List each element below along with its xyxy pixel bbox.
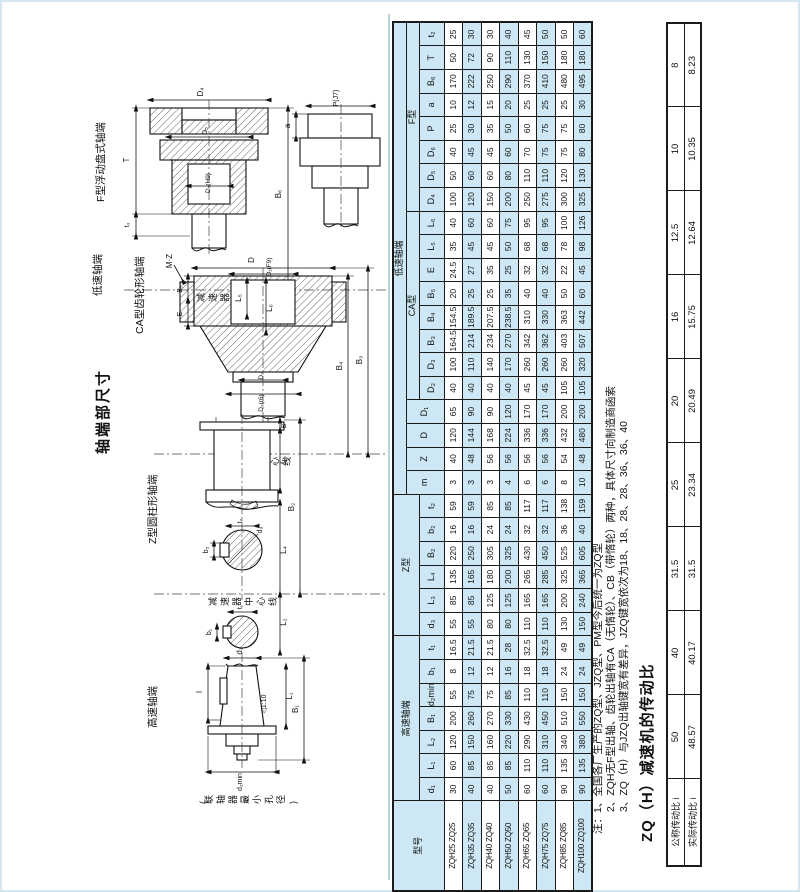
dim-label-b5: B₅	[177, 285, 184, 293]
table-cell: 180	[481, 565, 500, 589]
table-cell: 325	[574, 187, 593, 211]
table-cell: 35	[500, 282, 519, 306]
column-header: a	[419, 93, 444, 117]
table-cell: 238.5	[500, 305, 519, 329]
table-cell: 18	[537, 659, 556, 683]
table-cell: 40	[444, 140, 463, 164]
table-cell: 35	[481, 117, 500, 141]
table-cell: 165	[518, 589, 537, 613]
drawing-hs-type: 高速轴端 b₁ t₁ L₂ d₁ l ◁1:10	[146, 594, 310, 804]
drawing-label-z-type: Z型圆柱形轴端	[146, 474, 159, 544]
column-header: B₄	[419, 305, 444, 329]
table-cell: 40	[500, 22, 519, 46]
table-cell: 25	[481, 282, 500, 306]
table-cell: 55	[444, 683, 463, 707]
column-header: D	[406, 423, 444, 447]
dim-label-t1: t₁	[237, 604, 244, 609]
table-cell: 160	[481, 730, 500, 754]
table-cell: 180	[574, 46, 593, 70]
table-cell: 85	[463, 754, 482, 778]
table-cell: 180	[555, 46, 574, 70]
dim-label-d2min: d₂min	[237, 773, 244, 791]
table-cell: 70	[518, 140, 537, 164]
column-header: d₂min	[419, 683, 444, 707]
table-cell: 4	[500, 471, 519, 495]
table-cell: 40	[463, 777, 482, 801]
table-cell: 40	[463, 376, 482, 400]
table-cell: 95	[518, 211, 537, 235]
dim-label-b3: B₃	[355, 356, 364, 365]
table-cell: 380	[574, 730, 593, 754]
model-cell: ZQH35 ZQ35	[463, 801, 482, 891]
table-cell: 45	[518, 376, 537, 400]
table-cell: 110	[537, 683, 556, 707]
table-cell: 110	[537, 612, 556, 636]
table-cell: 159	[574, 494, 593, 518]
dim-label-b2k: b₂	[203, 546, 210, 553]
ratio-cell: 40.17	[684, 611, 701, 695]
dim-label-b4: B₄	[335, 362, 344, 371]
table-cell: 10	[574, 471, 593, 495]
table-cell: 50	[555, 22, 574, 46]
table-cell: 480	[555, 70, 574, 94]
table-cell: 120	[555, 164, 574, 188]
column-header: B₂	[419, 541, 444, 565]
ratio-cell: 31.5	[684, 527, 701, 611]
table-cell: 48	[574, 447, 593, 471]
ratio-cell: 48.57	[684, 695, 701, 779]
table-cell: 207.5	[481, 305, 500, 329]
table-cell: 130	[574, 164, 593, 188]
table-cell: 126	[574, 211, 593, 235]
table-cell: 85	[444, 589, 463, 613]
ratio-row-header: 实际传动比 i	[684, 779, 701, 866]
table-cell: 80	[500, 612, 519, 636]
note-line-2: 2、ZQH无F型出轴、齿轮出轴有CA（无惰轮）、CB（带惰轮）两种，具体尺寸向制…	[605, 520, 618, 834]
table-cell: 250	[481, 70, 500, 94]
ratio-row: 公称传动比 i504031.525201612.5108	[667, 23, 684, 866]
table-cell: 27	[463, 258, 482, 282]
column-header: P	[419, 117, 444, 141]
table-cell: 120	[444, 730, 463, 754]
table-cell: 120	[463, 187, 482, 211]
table-cell: 3	[463, 471, 482, 495]
table-cell: 250	[463, 541, 482, 565]
table-cell: 40	[518, 282, 537, 306]
table-cell: 40	[481, 376, 500, 400]
table-cell: 40	[444, 211, 463, 235]
table-cell: 135	[444, 565, 463, 589]
table-cell: 55	[463, 612, 482, 636]
ratio-cell: 25	[667, 443, 684, 527]
group-label-low-speed: 低速轴端	[91, 254, 104, 296]
table-cell: 16	[500, 659, 519, 683]
shaft-dimensions-table: 型号高速轴端Z型低速轴端mZDD₁CA型F型d₁L₁L₂B₁d₂minb₁t₁d…	[392, 24, 591, 892]
table-cell: 275	[537, 187, 556, 211]
table-cell: 362	[537, 329, 556, 353]
table-cell: 98	[574, 235, 593, 259]
table-cell: 50	[555, 282, 574, 306]
table-cell: 59	[444, 494, 463, 518]
table-cell: 403	[555, 329, 574, 353]
dim-label-d3ca: D₃(r6)	[258, 394, 265, 411]
table-cell: 35	[444, 235, 463, 259]
table-cell: 110	[500, 46, 519, 70]
table-cell: 40	[444, 447, 463, 471]
table-cell: 32.5	[537, 636, 556, 660]
dim-label-d1: D₁(F9)	[266, 258, 273, 277]
table-cell: 32	[518, 258, 537, 282]
drawing-label-f-type: F型浮动盘式轴端	[94, 122, 107, 202]
table-cell: 342	[518, 329, 537, 353]
page-title: 轴端部尺寸	[92, 370, 114, 454]
table-cell: 150	[555, 683, 574, 707]
column-header: B₃	[419, 329, 444, 353]
table-cell: 21.5	[481, 636, 500, 660]
table-cell: 200	[444, 707, 463, 731]
dim-label-d: D	[247, 257, 256, 263]
table-cell: 330	[500, 707, 519, 731]
table-cell: 100	[444, 187, 463, 211]
ratio-cell: 31.5	[667, 527, 684, 611]
dim-label-p: P(J7)	[333, 90, 340, 107]
table-cell: 25	[463, 282, 482, 306]
table-cell: 290	[518, 730, 537, 754]
dim-label-a: a	[283, 123, 292, 128]
table-cell: 410	[537, 70, 556, 94]
table-cell: 200	[555, 589, 574, 613]
table-cell: 430	[518, 541, 537, 565]
dim-label-b6: B₆	[274, 190, 283, 199]
table-cell: 550	[574, 707, 593, 731]
table-cell: 68	[518, 235, 537, 259]
table-cell: 85	[481, 754, 500, 778]
table-cell: 50	[500, 777, 519, 801]
table-cell: 60	[444, 754, 463, 778]
table-cell: 110	[537, 164, 556, 188]
dim-label-l2: L₂	[279, 618, 288, 626]
note-line-1: 注：1、全国各厂生产的ZQ型、JZQ型、PM型今后统一为ZQ型	[592, 520, 605, 834]
table-cell: 168	[481, 423, 500, 447]
table-cell: 85	[463, 589, 482, 613]
table-cell: 240	[574, 589, 593, 613]
ratio-table-title: ZQ（H）减速机的传动比	[636, 684, 662, 842]
table-cell: 325	[500, 541, 519, 565]
table-cell: 340	[555, 730, 574, 754]
table-cell: 90	[574, 777, 593, 801]
ratio-cell: 15.75	[684, 275, 701, 359]
table-cell: 110	[518, 683, 537, 707]
table-cell: 8	[555, 471, 574, 495]
table-cell: 260	[518, 353, 537, 377]
table-cell: 120	[500, 400, 519, 424]
table-cell: 495	[574, 70, 593, 94]
dim-label-l: l	[195, 691, 204, 693]
column-header: D₅	[419, 164, 444, 188]
table-row: ZQH65 ZQ65601102904301101832.51101652654…	[518, 22, 537, 891]
column-header: F型	[406, 22, 419, 211]
table-cell: 35	[481, 258, 500, 282]
ratio-cell: 23.34	[684, 443, 701, 527]
table-cell: 110	[518, 754, 537, 778]
table-cell: 285	[537, 565, 556, 589]
table-cell: 50	[444, 46, 463, 70]
table-cell: 265	[518, 565, 537, 589]
dim-label-d6: D₆(H9)	[205, 173, 212, 193]
column-header: D₆	[419, 140, 444, 164]
table-cell: 95	[537, 211, 556, 235]
table-cell: 3	[481, 471, 500, 495]
model-cell: ZQH75 ZQ75	[537, 801, 556, 891]
table-cell: 50	[500, 117, 519, 141]
table-cell: 450	[537, 707, 556, 731]
table-cell: 90	[481, 46, 500, 70]
table-cell: 605	[574, 541, 593, 565]
table-cell: 28	[500, 636, 519, 660]
table-cell: 222	[463, 70, 482, 94]
model-column-header: 型号	[393, 801, 444, 891]
dim-label-e: E	[177, 311, 184, 316]
table-cell: 60	[463, 211, 482, 235]
table-cell: 270	[481, 707, 500, 731]
table-cell: 16	[444, 518, 463, 542]
table-row: ZQH75 ZQ75601103104501101832.51101652854…	[537, 22, 556, 891]
column-header: L₄	[419, 565, 444, 589]
table-cell: 110	[463, 353, 482, 377]
table-cell: 310	[518, 305, 537, 329]
model-cell: ZQH100 ZQ100	[574, 801, 593, 891]
table-cell: 200	[574, 400, 593, 424]
table-row: ZQH85 ZQ85901353405101502449130200325525…	[555, 22, 574, 891]
column-header: B₁	[419, 707, 444, 731]
table-cell: 30	[444, 777, 463, 801]
dim-label-d5: D₅	[202, 127, 209, 135]
column-header: B₆	[419, 70, 444, 94]
table-cell: 56	[518, 447, 537, 471]
table-cell: 16	[463, 518, 482, 542]
table-cell: 30	[463, 22, 482, 46]
table-cell: 30	[463, 117, 482, 141]
table-cell: 24	[500, 518, 519, 542]
table-cell: 40	[500, 376, 519, 400]
table-cell: 56	[481, 447, 500, 471]
dim-label-d2: D₂	[258, 372, 265, 380]
table-cell: 24.5	[444, 258, 463, 282]
table-cell: 110	[518, 164, 537, 188]
notes: 注：1、全国各厂生产的ZQ型、JZQ型、PM型今后统一为ZQ型 2、ZQH无F型…	[592, 520, 634, 834]
table-cell: 330	[537, 305, 556, 329]
table-cell: 220	[500, 730, 519, 754]
table-cell: 105	[574, 376, 593, 400]
ratio-cell: 10.35	[684, 107, 701, 191]
table-cell: 6	[518, 471, 537, 495]
table-cell: 370	[518, 70, 537, 94]
table-cell: 8	[444, 659, 463, 683]
table-cell: 150	[537, 46, 556, 70]
model-cell: ZQH50 ZQ50	[500, 801, 519, 891]
table-cell: 189.5	[463, 305, 482, 329]
table-cell: 75	[555, 117, 574, 141]
dim-label-t2: t₂	[237, 518, 244, 523]
table-cell: 336	[537, 423, 556, 447]
table-cell: 214	[463, 329, 482, 353]
table-cell: 140	[481, 353, 500, 377]
table-cell: 50	[500, 235, 519, 259]
table-cell: 110	[518, 612, 537, 636]
table-cell: 80	[574, 140, 593, 164]
centerline-label-3: 减速器中心线	[207, 594, 278, 606]
table-cell: 80	[574, 117, 593, 141]
table-cell: 117	[518, 494, 537, 518]
table-cell: 48	[463, 447, 482, 471]
table-cell: 154.5	[444, 305, 463, 329]
dim-label-l4: L₄	[279, 546, 288, 554]
table-cell: 85	[500, 754, 519, 778]
table-cell: 49	[555, 636, 574, 660]
column-header: d₃	[419, 612, 444, 636]
table-cell: 21.5	[463, 636, 482, 660]
table-cell: 60	[574, 282, 593, 306]
column-header: B₅	[419, 282, 444, 306]
column-header: L₂	[419, 730, 444, 754]
table-cell: 305	[481, 541, 500, 565]
table-cell: 24	[574, 659, 593, 683]
table-cell: 16.5	[444, 636, 463, 660]
table-cell: 430	[518, 707, 537, 731]
table-cell: 336	[518, 423, 537, 447]
ratio-cell: 8	[667, 23, 684, 107]
table-cell: 480	[574, 423, 593, 447]
table-cell: 75	[537, 117, 556, 141]
ratio-cell: 10	[667, 107, 684, 191]
table-cell: 45	[481, 140, 500, 164]
table-cell: 68	[537, 235, 556, 259]
table-cell: 125	[500, 589, 519, 613]
table-cell: 450	[537, 541, 556, 565]
column-header: m	[406, 471, 444, 495]
table-cell: 45	[463, 140, 482, 164]
model-cell: ZQH85 ZQ85	[555, 801, 574, 891]
drawing-label-ca-type: CA型齿轮形轴端	[133, 256, 146, 334]
table-row: ZQH50 ZQ50508522033085162880125200325248…	[500, 22, 519, 891]
column-header: b₁	[419, 659, 444, 683]
table-cell: 120	[444, 423, 463, 447]
table-cell: 75	[481, 683, 500, 707]
table-cell: 56	[537, 447, 556, 471]
table-cell: 12	[463, 93, 482, 117]
table-cell: 170	[444, 70, 463, 94]
table-cell: 130	[555, 612, 574, 636]
column-header: 低速轴端	[393, 22, 406, 494]
table-row: ZQH100 ZQ1009013538055015024491502403656…	[574, 22, 593, 891]
table-cell: 15	[481, 93, 500, 117]
drawing-label-hs-type: 高速轴端	[146, 686, 159, 728]
table-cell: 18	[518, 659, 537, 683]
column-header: E	[419, 258, 444, 282]
dim-label-taper: ◁1:10	[261, 694, 268, 713]
table-cell: 85	[500, 494, 519, 518]
table-cell: 80	[481, 612, 500, 636]
column-header: L₃	[419, 589, 444, 613]
table-cell: 170	[518, 400, 537, 424]
table-cell: 100	[444, 353, 463, 377]
table-cell: 32	[518, 518, 537, 542]
table-cell: 363	[555, 305, 574, 329]
column-header: L₆	[419, 211, 444, 235]
table-cell: 60	[518, 117, 537, 141]
ratio-cell: 12.5	[667, 191, 684, 275]
column-header: t₂	[419, 22, 444, 46]
table-cell: 30	[481, 22, 500, 46]
table-cell: 100	[555, 211, 574, 235]
table-cell: 20	[500, 93, 519, 117]
column-header: 高速轴端	[393, 636, 419, 801]
table-cell: 224	[500, 423, 519, 447]
column-header: t₁	[419, 636, 444, 660]
table-cell: 442	[574, 305, 593, 329]
table-row: ZQH35 ZQ354085150260751221.5558516525016…	[463, 22, 482, 891]
dim-label-t: T	[122, 157, 131, 162]
ratio-row-header: 公称传动比 i	[667, 779, 684, 866]
table-cell: 32.5	[518, 636, 537, 660]
table-cell: 60	[500, 140, 519, 164]
table-cell: 25	[555, 93, 574, 117]
table-cell: 54	[555, 447, 574, 471]
table-cell: 85	[481, 494, 500, 518]
table-cell: 135	[574, 754, 593, 778]
table-cell: 90	[463, 400, 482, 424]
caption-coupling-bore: (联轴器最小孔径)	[198, 792, 298, 804]
table-cell: 260	[537, 353, 556, 377]
table-cell: 72	[463, 46, 482, 70]
column-header: CA型	[406, 211, 419, 400]
column-header: T	[419, 46, 444, 70]
table-cell: 50	[444, 164, 463, 188]
table-cell: 260	[463, 707, 482, 731]
dim-label-l5: L₅	[234, 294, 243, 302]
table-cell: 270	[500, 329, 519, 353]
table-cell: 78	[555, 235, 574, 259]
ratio-cell: 50	[667, 695, 684, 779]
column-header: L₅	[419, 235, 444, 259]
table-cell: 200	[500, 187, 519, 211]
table-cell: 320	[574, 353, 593, 377]
table-cell: 25	[518, 93, 537, 117]
table-cell: 45	[518, 22, 537, 46]
table-cell: 40	[574, 518, 593, 542]
table-cell: 290	[500, 70, 519, 94]
table-cell: 24	[555, 659, 574, 683]
table-cell: 12	[481, 659, 500, 683]
table-cell: 85	[500, 683, 519, 707]
table-cell: 55	[444, 612, 463, 636]
table-cell: 22	[555, 258, 574, 282]
table-cell: 25	[444, 22, 463, 46]
drawing-z-type: Z型圆柱形轴端 B L₃ B₂ b₂ t₂ d₃	[146, 414, 388, 606]
table-cell: 90	[481, 400, 500, 424]
table-cell: 117	[537, 494, 556, 518]
table-cell: 40	[481, 777, 500, 801]
column-header: D₄	[419, 187, 444, 211]
dim-label-t3: t₃	[124, 222, 131, 227]
model-cell: ZQH25 ZQ25	[444, 801, 463, 891]
note-line-3: 3、ZQ（H）与JZQ出轴键宽有差异，JZQ键宽依次为18、18、28、28、3…	[618, 520, 631, 834]
ratio-cell: 8.23	[684, 23, 701, 107]
table-cell: 45	[574, 258, 593, 282]
table-cell: 138	[555, 494, 574, 518]
table-cell: 325	[555, 565, 574, 589]
column-header: d₁	[419, 777, 444, 801]
